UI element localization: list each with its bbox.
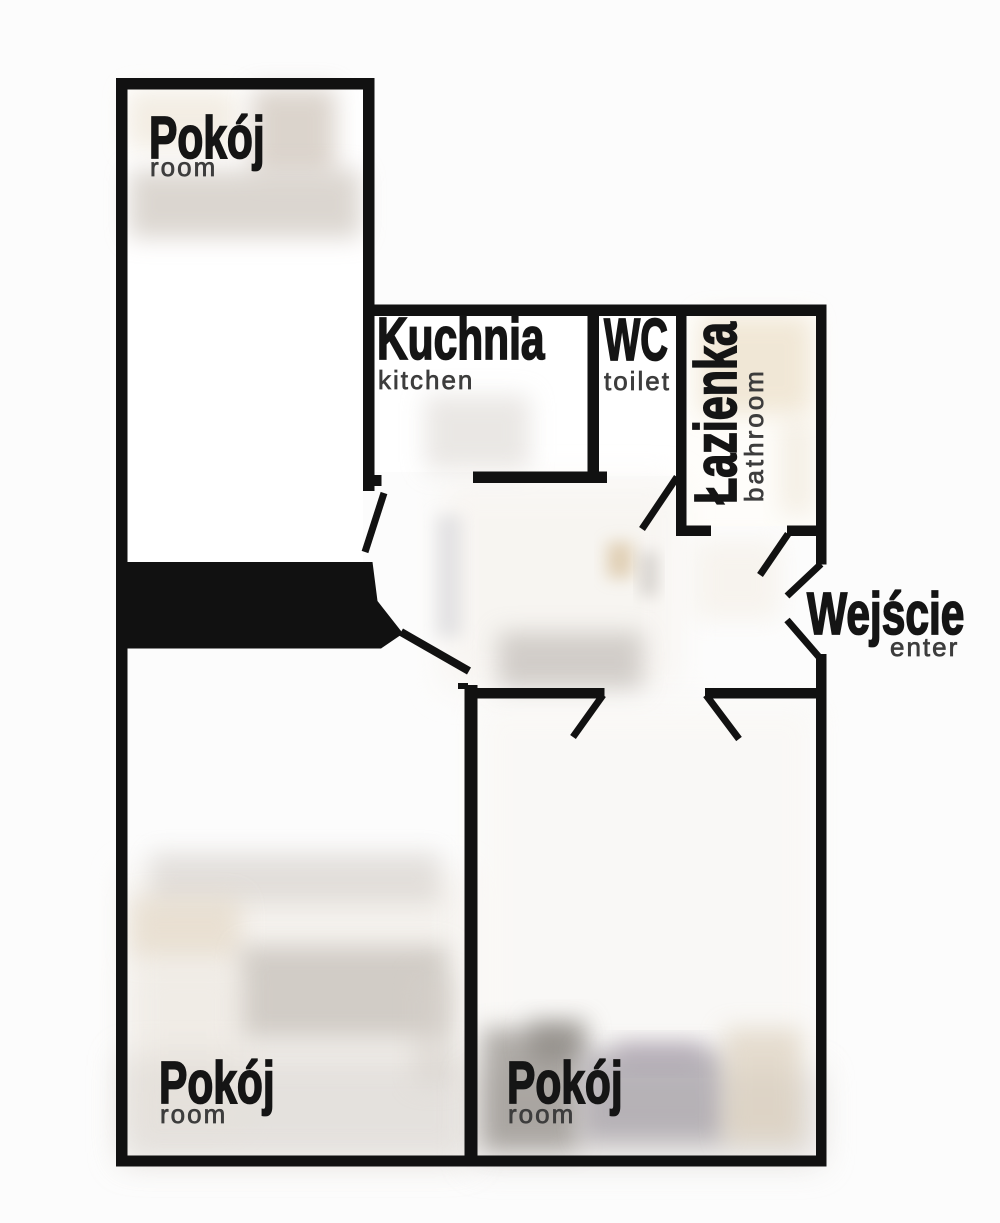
- svg-text:kitchen: kitchen: [378, 365, 474, 395]
- svg-text:room: room: [508, 1099, 575, 1129]
- svg-text:room: room: [160, 1099, 227, 1129]
- svg-text:Kuchnia: Kuchnia: [377, 305, 545, 372]
- svg-text:room: room: [150, 152, 217, 182]
- svg-text:WC: WC: [604, 307, 668, 373]
- svg-text:enter: enter: [890, 632, 959, 662]
- svg-text:bathroom: bathroom: [739, 368, 769, 502]
- svg-text:toilet: toilet: [604, 366, 671, 396]
